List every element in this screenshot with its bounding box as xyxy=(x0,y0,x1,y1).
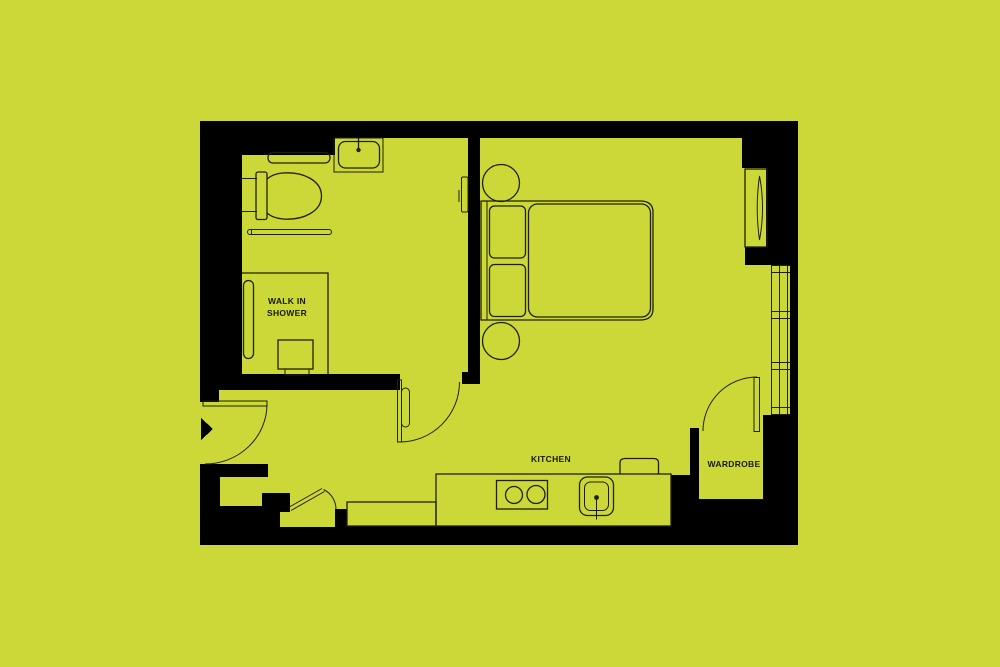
bedroom-fixtures xyxy=(481,165,790,416)
floor-plan: WALK IN SHOWER KITCHEN WARDROBE xyxy=(0,0,1000,667)
wall-left-foot xyxy=(200,388,219,402)
wall-bathroom-divider xyxy=(468,121,480,384)
wall-left-of-wardrobe xyxy=(671,475,690,526)
wall-niche-chunk xyxy=(262,493,290,512)
shower-screen-icon xyxy=(244,281,254,359)
wardrobe-label: WARDROBE xyxy=(708,459,761,469)
bedside-table-top-icon xyxy=(483,165,520,202)
wall-door-stub xyxy=(462,372,480,384)
entry-arrow-icon xyxy=(201,418,213,440)
wall-bathroom-bottom xyxy=(200,374,400,390)
kitchen-low-counter-icon xyxy=(347,502,436,526)
bedside-table-bottom-icon xyxy=(483,323,520,360)
mirror-unit-icon xyxy=(745,169,767,247)
floor-plan-page: WALK IN SHOWER KITCHEN WARDROBE xyxy=(0,0,1000,667)
walk-in-shower-area xyxy=(242,273,328,375)
kitchen-label: KITCHEN xyxy=(531,454,571,464)
toilet-icon xyxy=(256,172,322,220)
kitchen-counter-icon xyxy=(436,474,671,526)
window-icon xyxy=(772,265,791,415)
wall-below-mirror-unit xyxy=(745,247,790,265)
wardrobe-door-icon xyxy=(703,377,760,432)
mattress-icon xyxy=(529,204,651,317)
wall-bottom-main xyxy=(347,526,798,545)
kitchen-appliance-icon xyxy=(620,459,659,474)
wall-entry-band xyxy=(218,464,268,477)
pillow-icon xyxy=(490,206,526,258)
kitchen-fixtures xyxy=(347,459,671,527)
walk-in-shower-label-line2: SHOWER xyxy=(267,308,307,318)
wall-top-right-block xyxy=(742,121,798,168)
bathroom-sink-icon xyxy=(334,138,383,172)
hob-icon xyxy=(497,481,548,510)
bathroom-fixtures xyxy=(242,138,468,375)
towel-rail-icon xyxy=(248,230,332,235)
walls xyxy=(200,121,798,545)
wall-left xyxy=(200,121,242,390)
kitchen-sink-icon xyxy=(580,477,614,520)
walk-in-shower-label-line1: WALK IN xyxy=(268,296,306,306)
pillow-icon xyxy=(490,265,526,317)
shower-tray-box-icon xyxy=(278,340,313,369)
entry-door-icon xyxy=(203,401,267,464)
storage-hatch-door-icon xyxy=(289,489,337,511)
wall-niche-jamb xyxy=(335,509,347,545)
wall-panel-icon xyxy=(459,177,468,212)
wall-right-window-side xyxy=(790,265,798,415)
wall-wardrobe-left xyxy=(690,428,699,499)
wall-bottom-left-column xyxy=(200,464,220,545)
double-bed-icon xyxy=(481,201,653,320)
hall-door-icon xyxy=(398,380,460,442)
wall-below-wardrobe xyxy=(690,499,798,526)
